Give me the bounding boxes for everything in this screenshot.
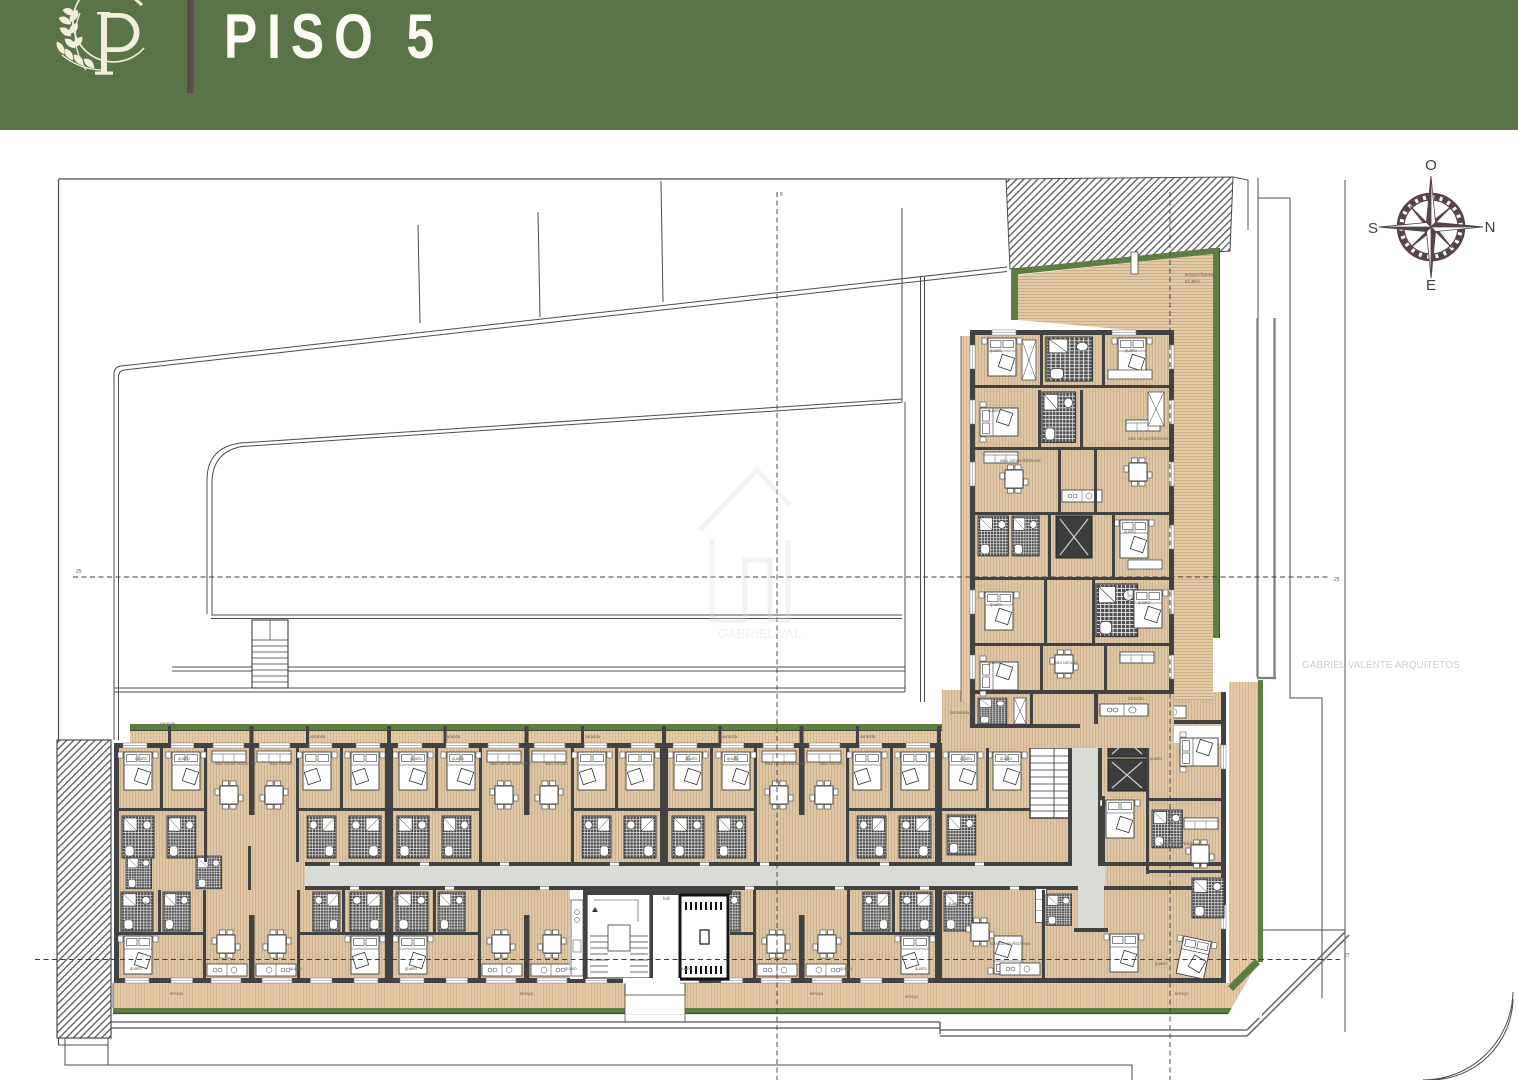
svg-text:hall: hall	[663, 896, 670, 901]
svg-text:quarto: quarto	[948, 901, 961, 906]
svg-text:GABRIEL VAL: GABRIEL VAL	[718, 626, 801, 641]
svg-text:varanda: varanda	[722, 734, 738, 739]
svg-text:quarto: quarto	[1150, 756, 1163, 761]
svg-text:quarto: quarto	[727, 756, 740, 761]
svg-text:E: E	[1426, 277, 1436, 294]
svg-text:quarto: quarto	[990, 348, 1003, 353]
svg-text:varanda: varanda	[445, 734, 461, 739]
svg-text:quarto: quarto	[1125, 348, 1138, 353]
svg-text:varanda: varanda	[160, 721, 176, 726]
svg-text:sala comum/kitchenet: sala comum/kitchenet	[215, 761, 256, 766]
svg-text:25: 25	[76, 569, 82, 575]
svg-text:terraço: terraço	[905, 994, 919, 999]
svg-text:corredor: corredor	[1128, 696, 1144, 701]
svg-text:quarto: quarto	[988, 408, 1001, 413]
svg-text:quarto: quarto	[178, 756, 191, 761]
svg-text:sala comum/kitchenet: sala comum/kitchenet	[1000, 458, 1041, 463]
svg-text:hall: hall	[390, 896, 397, 901]
svg-text:terraço: terraço	[810, 991, 824, 996]
svg-text:terraço: terraço	[1175, 991, 1189, 996]
svg-text:quarto: quarto	[990, 602, 1003, 607]
svg-text:varanda: varanda	[310, 734, 326, 739]
svg-text:quarto: quarto	[410, 756, 423, 761]
svg-text:sala comum/kitchenet: sala comum/kitchenet	[1160, 841, 1201, 846]
svg-text:S: S	[1368, 220, 1378, 237]
svg-text:quarto: quarto	[290, 966, 303, 971]
svg-text:quarto: quarto	[1155, 961, 1168, 966]
svg-text:84,38m²: 84,38m²	[1185, 279, 1201, 284]
svg-text:quarto: quarto	[988, 660, 1001, 665]
svg-text:quarto: quarto	[565, 966, 578, 971]
svg-text:PISO 5: PISO 5	[224, 3, 444, 73]
svg-text:terraço: terraço	[170, 991, 184, 996]
svg-text:sala comum: sala comum	[270, 761, 293, 766]
svg-text:quarto: quarto	[1124, 529, 1137, 534]
svg-text:quarto: quarto	[405, 966, 418, 971]
svg-text:quarto: quarto	[680, 966, 693, 971]
svg-text:hall: hall	[140, 901, 147, 906]
svg-text:quarto: quarto	[960, 756, 973, 761]
svg-text:quarto: quarto	[1000, 756, 1013, 761]
svg-text:8: 8	[780, 192, 783, 198]
svg-text:sala comum: sala comum	[545, 761, 568, 766]
svg-text:sala comum/kitchenet: sala comum/kitchenet	[765, 761, 806, 766]
svg-text:N: N	[1485, 219, 1496, 236]
svg-text:quarto: quarto	[685, 756, 698, 761]
svg-text:sala comum: sala comum	[820, 761, 843, 766]
svg-text:quarto: quarto	[130, 966, 143, 971]
svg-text:terraço+floreira: terraço+floreira	[1185, 272, 1214, 277]
svg-text:quarto: quarto	[915, 966, 928, 971]
svg-text:sala comum/kitchenet: sala comum/kitchenet	[990, 941, 1031, 946]
svg-text:sala comum/kitchenet: sala comum/kitchenet	[490, 761, 531, 766]
svg-text:25: 25	[1334, 577, 1340, 583]
svg-text:lavandaria: lavandaria	[950, 710, 970, 715]
svg-text:quarto: quarto	[840, 966, 853, 971]
svg-text:O: O	[1425, 157, 1437, 174]
svg-text:quarto: quarto	[135, 756, 148, 761]
svg-text:GABRIEL VALENTE ARQUITETOS: GABRIEL VALENTE ARQUITETOS	[1302, 660, 1460, 671]
svg-text:quarto: quarto	[1138, 600, 1151, 605]
svg-text:sala comum: sala comum	[1054, 660, 1077, 665]
svg-text:varanda: varanda	[860, 734, 876, 739]
svg-text:varanda: varanda	[585, 734, 601, 739]
svg-text:27: 27	[1344, 953, 1350, 959]
svg-text:sala comum/kitchenet: sala comum/kitchenet	[1128, 436, 1169, 441]
svg-text:terraço: terraço	[520, 991, 534, 996]
svg-text:quarto: quarto	[452, 756, 465, 761]
